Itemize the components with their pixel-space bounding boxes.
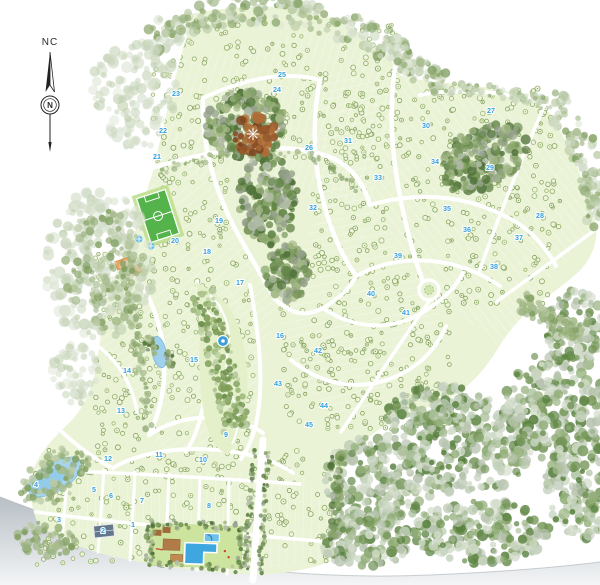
section-number-27: 27	[487, 106, 495, 115]
section-number-29: 29	[486, 163, 494, 172]
section-number-43: 43	[274, 379, 282, 388]
section-number-38: 38	[490, 262, 498, 271]
compass-needle-light	[50, 52, 55, 92]
section-number-8: 8	[207, 501, 211, 510]
compass-north-letter: N	[47, 101, 53, 110]
section-number-13: 13	[117, 406, 125, 415]
section-number-4: 4	[34, 480, 38, 489]
compass-tail-tip	[48, 142, 51, 152]
compass-needle-dark	[46, 52, 51, 92]
section-number-17: 17	[236, 278, 244, 287]
section-number-23: 23	[172, 89, 180, 98]
clearing-star-overlay	[247, 128, 259, 140]
pool-complex	[143, 518, 249, 575]
section-number-12: 12	[104, 454, 112, 463]
section-number-6: 6	[109, 491, 113, 500]
section-number-42: 42	[314, 346, 322, 355]
section-number-9: 9	[224, 430, 228, 439]
section-number-16: 16	[276, 331, 284, 340]
roundabout	[419, 280, 439, 300]
section-number-41: 41	[402, 308, 410, 317]
section-number-21: 21	[153, 152, 161, 161]
section-number-15: 15	[190, 355, 198, 364]
section-number-22: 22	[159, 126, 167, 135]
section-number-3: 3	[57, 515, 61, 524]
section-number-2: 2	[101, 526, 105, 535]
section-number-28: 28	[536, 211, 544, 220]
section-number-44: 44	[320, 401, 328, 410]
section-number-5: 5	[92, 485, 96, 494]
section-number-14: 14	[123, 366, 131, 375]
section-number-40: 40	[367, 289, 375, 298]
section-number-35: 35	[443, 204, 451, 213]
section-number-25: 25	[278, 70, 286, 79]
section-number-32: 32	[309, 203, 317, 212]
site-plan: 1234567891011121314151617181920212223242…	[0, 0, 600, 585]
section-number-26: 26	[305, 143, 313, 152]
section-number-11: 11	[155, 450, 163, 459]
section-number-1: 1	[131, 520, 135, 529]
section-number-45: 45	[305, 420, 313, 429]
section-number-30: 30	[422, 121, 430, 130]
central-park-fountain	[218, 336, 229, 347]
compass: NC N	[20, 30, 90, 170]
section-number-36: 36	[463, 225, 471, 234]
section-number-37: 37	[515, 233, 523, 242]
compass-region-label: NC	[42, 37, 58, 48]
section-number-20: 20	[171, 236, 179, 245]
section-number-39: 39	[394, 251, 402, 260]
map-canvas: 1234567891011121314151617181920212223242…	[0, 0, 600, 585]
section-number-24: 24	[273, 85, 281, 94]
section-number-10: 10	[199, 455, 207, 464]
section-number-33: 33	[374, 173, 382, 182]
section-number-18: 18	[203, 247, 211, 256]
section-number-19: 19	[215, 216, 223, 225]
section-number-34: 34	[431, 157, 439, 166]
section-number-31: 31	[344, 136, 352, 145]
section-number-7: 7	[140, 496, 144, 505]
